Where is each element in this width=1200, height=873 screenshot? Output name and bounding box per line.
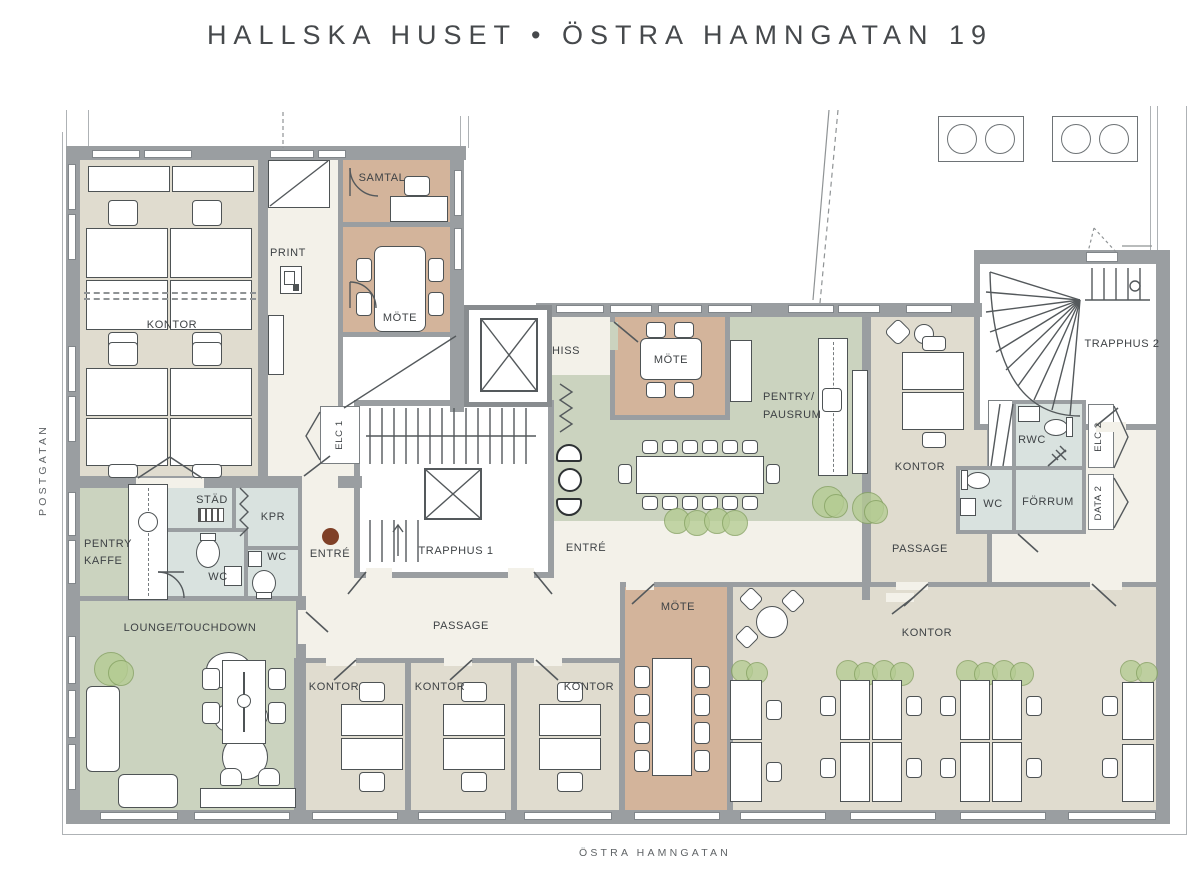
window (610, 305, 652, 313)
stool (220, 768, 242, 786)
chair (742, 440, 758, 454)
elevator-shaft (424, 468, 482, 520)
party-wall-line (66, 110, 67, 148)
chair (906, 758, 922, 778)
sink-icon (248, 551, 262, 567)
chair (766, 464, 780, 484)
chair (1102, 696, 1118, 716)
sink-icon (822, 388, 842, 412)
page-title: HALLSKA HUSET • ÖSTRA HAMNGATAN 19 (0, 20, 1200, 51)
plant-icon (1136, 662, 1158, 684)
room-label-wc: WC (983, 497, 1003, 511)
section-line (813, 110, 829, 300)
room-label-passage: PASSAGE (892, 542, 948, 556)
chair (461, 772, 487, 792)
chair (646, 382, 666, 398)
window (68, 636, 76, 684)
chair (694, 666, 710, 688)
door-opening (326, 658, 356, 666)
chair (674, 382, 694, 398)
chair (766, 700, 782, 720)
desk (1122, 744, 1154, 802)
window (556, 305, 604, 313)
chair (268, 668, 286, 690)
street-label-postgatan: POSTGATAN (37, 424, 49, 516)
plant-icon (108, 660, 134, 686)
chair (359, 682, 385, 702)
chair (694, 750, 710, 772)
room-label-pausrum: PAUSRUM (763, 408, 821, 422)
vent-circle-icon (1099, 124, 1129, 154)
chair (766, 762, 782, 782)
room-label-pentry-kaffe: KAFFE (84, 554, 122, 568)
chair (742, 496, 758, 510)
chair (694, 722, 710, 744)
room-label-pentry-kaffe: PENTRY (84, 537, 132, 551)
desk (170, 228, 252, 278)
chair (722, 496, 738, 510)
chair (192, 200, 222, 226)
chair (922, 336, 946, 351)
room-label-hiss: HISS (552, 344, 580, 358)
window (68, 164, 76, 210)
desk (730, 680, 762, 740)
cabinet (730, 340, 752, 402)
printer-detail (293, 284, 299, 291)
toilet-icon (196, 538, 220, 568)
desk (86, 418, 168, 466)
door-swing-dashed (1088, 228, 1094, 252)
window (68, 492, 76, 536)
chair (634, 666, 650, 688)
chair (428, 258, 444, 282)
section-line (84, 292, 256, 294)
site-boundary-line (62, 834, 1187, 835)
room-label-kontor: KONTOR (147, 318, 197, 332)
desk (341, 704, 403, 736)
room-label-mote: MÖTE (654, 353, 688, 367)
toilet-tank (1066, 417, 1073, 437)
section-line (84, 298, 256, 300)
room-label-passage: PASSAGE (433, 619, 489, 633)
street-label-ostra-hamngatan: ÖSTRA HAMNGATAN (579, 847, 731, 859)
chair (1026, 758, 1042, 778)
door-opening (886, 593, 914, 602)
door-opening (610, 322, 618, 350)
desk (86, 228, 168, 278)
room-label-elc1: ELC 1 (334, 420, 346, 449)
window (850, 812, 936, 820)
desk (840, 742, 870, 802)
bench-table (200, 788, 296, 808)
kitchen-counter (852, 370, 868, 474)
toilet-tank (200, 533, 216, 541)
long-table (636, 456, 764, 494)
door-opening (896, 582, 928, 590)
room-label-data2: DATA 2 (1093, 486, 1105, 521)
sofa-2seat (118, 774, 178, 808)
door-opening (1090, 582, 1122, 590)
chair (108, 342, 138, 366)
toilet-tank (961, 470, 968, 490)
chair (682, 440, 698, 454)
cabinet (268, 315, 284, 375)
cabinet (88, 166, 170, 192)
window (418, 812, 506, 820)
door-opening (298, 610, 306, 644)
desk (902, 352, 964, 390)
window (312, 812, 398, 820)
desk (840, 680, 870, 740)
meeting-table (652, 658, 692, 776)
chair (404, 176, 430, 196)
chair (192, 342, 222, 366)
room-label-trapphus2: TRAPPHUS 2 (1084, 337, 1159, 351)
door-opening (1086, 252, 1118, 262)
printer-detail (284, 271, 295, 285)
sink-icon (138, 512, 158, 532)
room-label-print: PRINT (270, 246, 306, 260)
stool (258, 768, 280, 786)
window (68, 214, 76, 260)
desk (960, 742, 990, 802)
window (68, 744, 76, 790)
elevator-shaft (480, 318, 538, 392)
chair (642, 440, 658, 454)
window (708, 305, 752, 313)
chair (428, 292, 444, 316)
chair (702, 440, 718, 454)
desk (170, 368, 252, 416)
window (68, 396, 76, 442)
plant-icon (864, 500, 888, 524)
plant-icon (722, 510, 748, 536)
desk (443, 738, 505, 770)
desk (390, 196, 448, 222)
floor-grate-icon (198, 508, 224, 522)
toilet-icon (966, 472, 990, 489)
chair (108, 464, 138, 478)
chair (618, 464, 632, 484)
window (318, 150, 346, 158)
chair (906, 696, 922, 716)
desk (902, 392, 964, 430)
window (838, 305, 880, 313)
desk (872, 680, 902, 740)
door-opening (302, 476, 338, 488)
window (454, 170, 462, 216)
chair (202, 668, 220, 690)
site-boundary-line (1186, 106, 1187, 835)
room-label-lounge: LOUNGE/TOUCHDOWN (124, 621, 257, 635)
vent-circle-icon (1061, 124, 1091, 154)
room-label-entre: ENTRÉ (310, 547, 350, 561)
wall (974, 250, 1170, 264)
room-label-wc: WC (267, 550, 287, 564)
room-label-kpr: KPR (261, 510, 285, 524)
desk (1122, 682, 1154, 740)
chair (1026, 696, 1042, 716)
window (68, 346, 76, 392)
chair (820, 696, 836, 716)
chair (359, 772, 385, 792)
window (144, 150, 192, 158)
window (270, 150, 314, 158)
desk (341, 738, 403, 770)
party-wall-line (88, 110, 89, 148)
counter-centerline (148, 488, 149, 596)
window (194, 812, 290, 820)
floorplan-page: HALLSKA HUSET • ÖSTRA HAMNGATAN 19 POSTG… (0, 0, 1200, 873)
chair (662, 440, 678, 454)
chair (1102, 758, 1118, 778)
chair (202, 702, 220, 724)
window (454, 228, 462, 270)
window (788, 305, 834, 313)
chair (268, 702, 286, 724)
window (960, 812, 1046, 820)
room-label-entre: ENTRÉ (566, 541, 606, 555)
chair (642, 496, 658, 510)
sofa-3seat (86, 686, 120, 772)
desk (992, 680, 1022, 740)
window (68, 540, 76, 584)
desk (539, 738, 601, 770)
room-label-wc: WC (208, 570, 228, 584)
desk (960, 680, 990, 740)
section-line (820, 110, 838, 303)
room-label-samtal: SAMTAL (359, 171, 406, 185)
chair (557, 772, 583, 792)
toilet-icon (1044, 419, 1068, 436)
chair (820, 758, 836, 778)
chair (682, 496, 698, 510)
plant-icon (824, 494, 848, 518)
chair (674, 322, 694, 338)
wall (258, 158, 268, 482)
round-table (756, 606, 788, 638)
door-opening (626, 582, 654, 590)
desk (170, 418, 252, 466)
window (634, 812, 720, 820)
door-opening (444, 658, 472, 666)
desk (443, 704, 505, 736)
chair (940, 758, 956, 778)
room-label-stad: STÄD (196, 493, 228, 507)
door-swing-dashed (1094, 228, 1116, 252)
chair (634, 722, 650, 744)
party-wall-line (1150, 106, 1151, 252)
window (1068, 812, 1156, 820)
table-leg (237, 694, 251, 708)
room-label-forrum: FÖRRUM (1022, 495, 1074, 509)
window (658, 305, 702, 313)
entrance-marker-dot (322, 528, 339, 545)
desk (86, 368, 168, 416)
desk (730, 742, 762, 802)
desk (539, 704, 601, 736)
desk (872, 742, 902, 802)
party-wall-line (460, 116, 461, 148)
room-label-mote: MÖTE (383, 311, 417, 325)
vent-circle-icon (985, 124, 1015, 154)
party-wall-line (468, 116, 469, 148)
toilet-tank (256, 592, 272, 599)
chair (634, 750, 650, 772)
door-opening (366, 568, 392, 580)
chair (722, 440, 738, 454)
vent-circle-icon (947, 124, 977, 154)
room-label-kontor: KONTOR (895, 460, 945, 474)
chair (694, 694, 710, 716)
chair (646, 322, 666, 338)
chair (940, 696, 956, 716)
chair (634, 694, 650, 716)
room-label-trapphus1: TRAPPHUS 1 (418, 544, 493, 558)
chair (356, 258, 372, 282)
sink-icon (1018, 406, 1040, 422)
window (906, 305, 952, 313)
window (92, 150, 140, 158)
chair (192, 464, 222, 478)
room-label-kontor: KONTOR (309, 680, 359, 694)
stool (558, 468, 582, 492)
room-label-kontor: KONTOR (564, 680, 614, 694)
window (740, 812, 826, 820)
desk (992, 742, 1022, 802)
sink-icon (960, 498, 976, 516)
room-label-kontor: KONTOR (902, 626, 952, 640)
party-wall-line (1157, 106, 1158, 252)
cabinet (172, 166, 254, 192)
chair (922, 432, 946, 448)
room-label-kontor: KONTOR (415, 680, 465, 694)
door-opening (534, 658, 562, 666)
window (68, 690, 76, 738)
door-opening (508, 568, 534, 580)
room-label-rwc: RWC (1018, 433, 1046, 447)
window (100, 812, 178, 820)
room-label-elc2: ELC 2 (1093, 422, 1105, 451)
chair (108, 200, 138, 226)
window (524, 812, 612, 820)
closet-diagonal (268, 160, 330, 208)
chair (356, 292, 372, 316)
room-label-pausrum: PENTRY/ (763, 390, 815, 404)
site-boundary-line (62, 132, 63, 834)
room-label-mote: MÖTE (661, 600, 695, 614)
